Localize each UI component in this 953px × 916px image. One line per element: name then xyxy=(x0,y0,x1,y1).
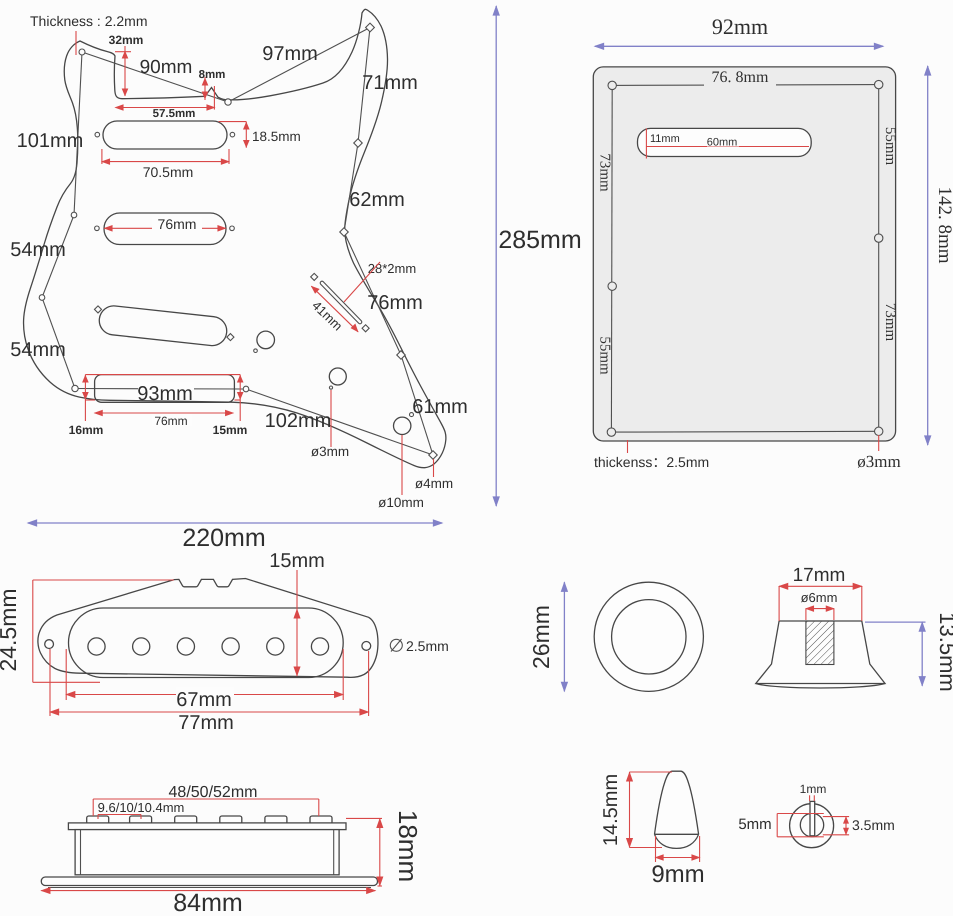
svg-text:28*2mm: 28*2mm xyxy=(368,261,416,276)
svg-text:67mm: 67mm xyxy=(176,689,232,711)
svg-text:17mm: 17mm xyxy=(793,565,846,586)
svg-text:32mm: 32mm xyxy=(109,33,144,47)
svg-text:ø3mm: ø3mm xyxy=(311,444,349,459)
svg-text:285mm: 285mm xyxy=(498,226,581,254)
svg-text:18mm: 18mm xyxy=(393,810,423,882)
svg-text:76mm: 76mm xyxy=(158,216,197,232)
svg-text:2.5mm: 2.5mm xyxy=(406,638,449,654)
svg-text:73mm: 73mm xyxy=(882,303,898,342)
svg-text:57.5mm: 57.5mm xyxy=(153,108,196,120)
svg-text:18.5mm: 18.5mm xyxy=(252,129,301,144)
svg-text:55mm: 55mm xyxy=(882,127,898,166)
svg-text:84mm: 84mm xyxy=(173,889,242,916)
svg-text:3.5mm: 3.5mm xyxy=(852,817,895,833)
svg-text:ø10mm: ø10mm xyxy=(378,495,424,510)
svg-text:26mm: 26mm xyxy=(528,605,554,669)
svg-text:77mm: 77mm xyxy=(178,712,234,734)
svg-text:220mm: 220mm xyxy=(182,524,265,552)
svg-text:101mm: 101mm xyxy=(17,130,84,152)
svg-text:97mm: 97mm xyxy=(262,43,318,65)
svg-text:92mm: 92mm xyxy=(712,14,768,39)
svg-text:5mm: 5mm xyxy=(738,816,771,833)
svg-text:thickenss：2.5mm: thickenss：2.5mm xyxy=(594,454,709,470)
svg-text:ø4mm: ø4mm xyxy=(415,476,453,491)
svg-text:102mm: 102mm xyxy=(265,410,332,432)
svg-text:9mm: 9mm xyxy=(651,861,704,888)
svg-text:62mm: 62mm xyxy=(349,189,405,211)
svg-text:11mm: 11mm xyxy=(650,133,680,145)
svg-text:14.5mm: 14.5mm xyxy=(600,774,622,846)
svg-text:55mm: 55mm xyxy=(597,336,613,375)
svg-text:76mm: 76mm xyxy=(367,292,423,314)
svg-text:60mm: 60mm xyxy=(707,137,738,149)
svg-text:54mm: 54mm xyxy=(10,239,66,261)
svg-text:76mm: 76mm xyxy=(154,414,187,428)
svg-text:93mm: 93mm xyxy=(137,383,193,405)
svg-text:8mm: 8mm xyxy=(199,69,226,81)
svg-text:61mm: 61mm xyxy=(412,396,468,418)
svg-text:ø6mm: ø6mm xyxy=(801,590,838,605)
svg-text:73mm: 73mm xyxy=(597,153,613,192)
svg-text:9.6/10/10.4mm: 9.6/10/10.4mm xyxy=(98,800,185,815)
svg-text:71mm: 71mm xyxy=(362,72,418,94)
svg-text:ø3mm: ø3mm xyxy=(857,452,900,471)
svg-text:54mm: 54mm xyxy=(10,339,66,361)
svg-text:24.5mm: 24.5mm xyxy=(0,588,21,671)
svg-text:90mm: 90mm xyxy=(140,57,193,78)
svg-text:15mm: 15mm xyxy=(269,550,325,572)
svg-text:76. 8mm: 76. 8mm xyxy=(712,69,769,86)
svg-text:1mm: 1mm xyxy=(800,782,827,796)
svg-text:142. 8mm: 142. 8mm xyxy=(934,186,953,263)
svg-text:Thickness : 2.2mm: Thickness : 2.2mm xyxy=(30,13,147,29)
svg-text:15mm: 15mm xyxy=(213,423,248,437)
svg-text:16mm: 16mm xyxy=(69,423,104,437)
svg-text:70.5mm: 70.5mm xyxy=(143,164,194,180)
svg-text:13.5mm: 13.5mm xyxy=(935,612,953,691)
